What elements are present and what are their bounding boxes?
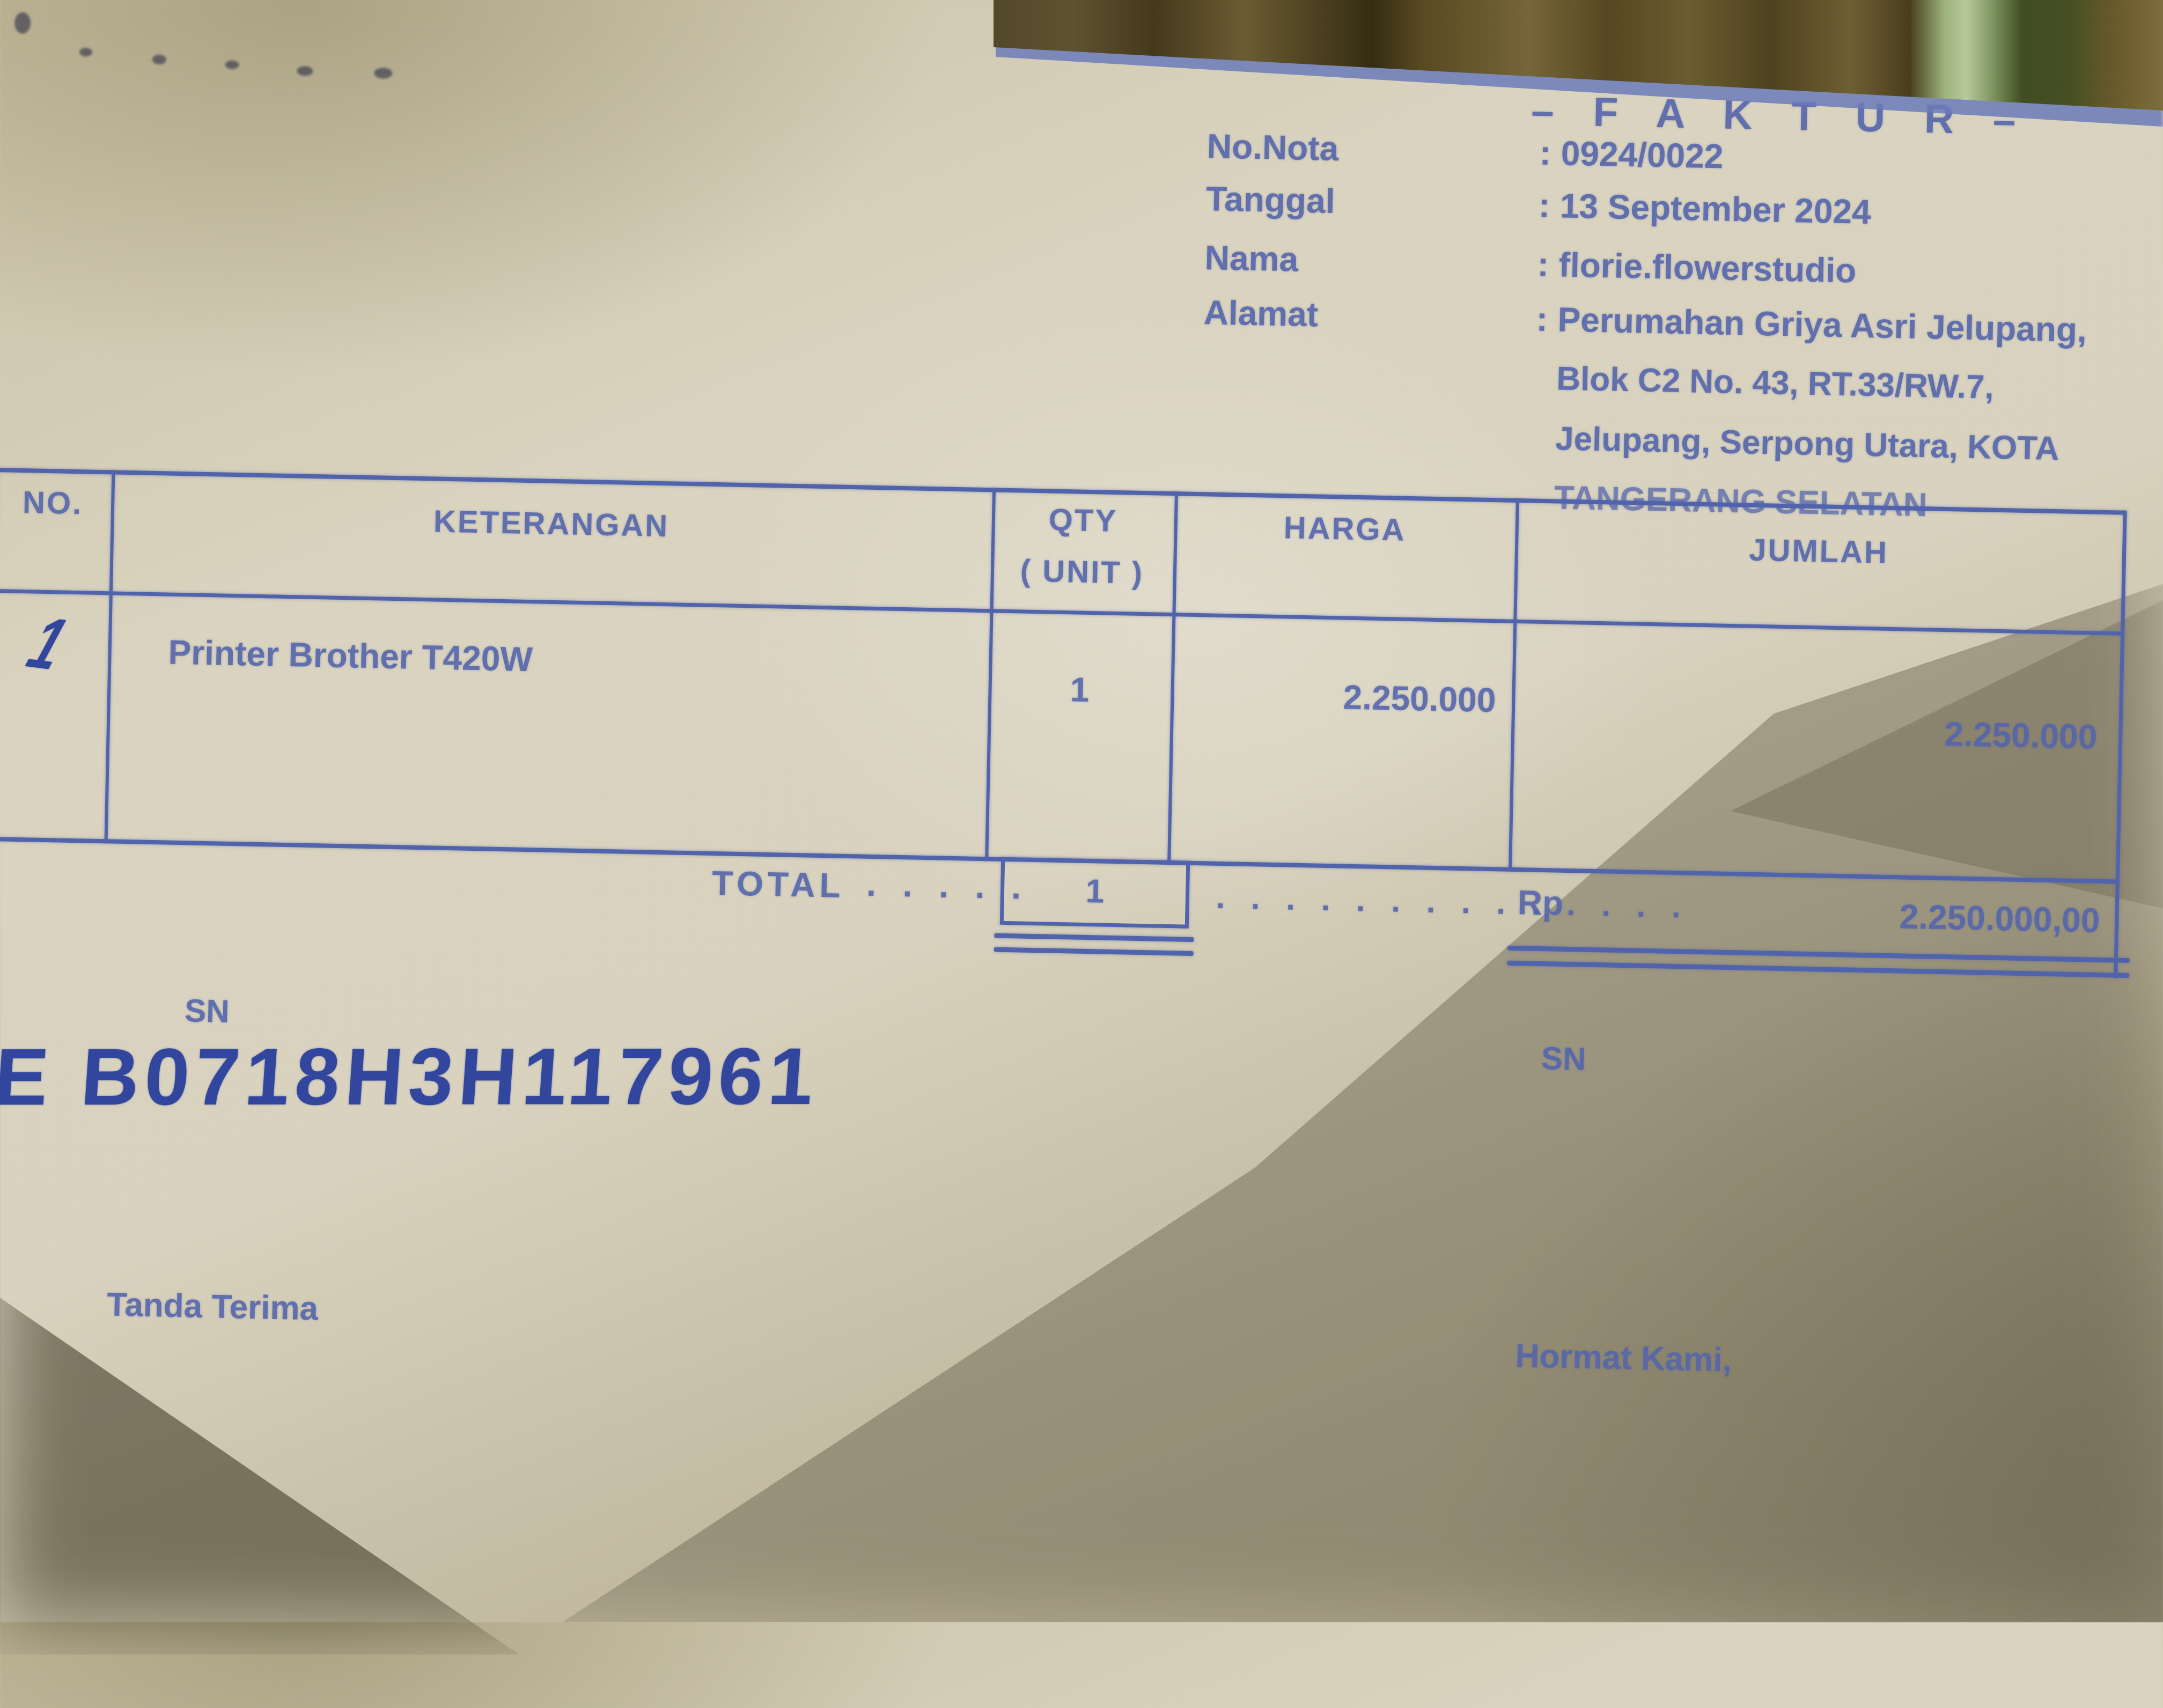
field-value: 0924/0022 (1561, 133, 1724, 176)
col-header-no: NO. (0, 484, 112, 522)
col-header-qty-unit: ( UNIT ) (990, 552, 1173, 592)
pen-scribble-marks (0, 0, 2163, 45)
col-header-keterangan: KETERANGAN (111, 497, 992, 550)
address-line: Blok C2 No. 43, RT.33/RW.7, (1556, 359, 1995, 406)
field-label: Nama (1204, 238, 1537, 284)
serial-number-handwritten: E B0718H3H117961 (0, 1030, 822, 1123)
total-amount-underline-1 (1507, 946, 2130, 963)
total-label: TOTAL (711, 863, 845, 905)
field-colon: : (1538, 186, 1560, 226)
item-description: Printer Brother T420W (168, 632, 533, 680)
table-border-headerbottom (0, 589, 2124, 636)
total-leader-dots-2: . . . . . . . . . . . . . . (1216, 879, 1689, 925)
total-qty-underline-1 (994, 933, 1194, 942)
field-value: 13 September 2024 (1559, 186, 1871, 232)
field-value: florie.flowerstudio (1558, 245, 1857, 290)
field-row-tanggal: Tanggal:13 September 2024 (1205, 179, 2163, 238)
total-amount-underline-2 (1507, 961, 2129, 978)
col-header-jumlah: JUMLAH (1514, 527, 2122, 576)
col-header-harga: HARGA (1174, 507, 1515, 550)
item-number-handwritten: 1 (13, 602, 84, 685)
items-table: NO. KETERANGAN QTY ( UNIT ) HARGA JUMLAH… (0, 468, 2127, 881)
col-header-qty: QTY (991, 500, 1174, 540)
item-qty: 1 (988, 668, 1171, 711)
receiver-signature-label: Tanda Terima (107, 1285, 319, 1328)
invoice-sheet: – F A K T U R – No.Nota:0924/0022 Tangga… (0, 0, 2163, 1708)
total-qty-box: 1 (1000, 857, 1190, 929)
address-line: Jelupang, Serpong Utara, KOTA (1555, 419, 2059, 468)
field-colon: : (1537, 245, 1559, 285)
field-label: Alamat (1203, 292, 1536, 338)
sn-label-left: SN (185, 992, 230, 1030)
field-label: No.Nota (1206, 126, 1540, 172)
item-amount: 2.250.000 (1511, 705, 2098, 757)
field-row-nama: Nama:florie.flowerstudio (1204, 238, 2163, 297)
field-label: Tanggal (1205, 179, 1539, 225)
sender-signature-label: Hormat Kami, (1515, 1337, 1732, 1379)
total-qty: 1 (1004, 871, 1186, 912)
item-price: 2.250.000 (1171, 674, 1496, 720)
total-currency: Rp (1517, 882, 1564, 923)
photographed-invoice: { "header": { "title": "– F A K T U R –"… (0, 0, 2163, 1622)
sn-label-right: SN (1541, 1040, 1586, 1078)
total-amount: 2.250.000,00 (1741, 894, 2100, 940)
table-border-right (2114, 511, 2127, 978)
field-row-alamat: Alamat:Perumahan Griya Asri Jelupang, (1203, 292, 2163, 351)
field-colon: : (1536, 299, 1558, 340)
field-value: Perumahan Griya Asri Jelupang, (1557, 299, 2087, 350)
total-qty-underline-2 (994, 947, 1194, 956)
field-colon: : (1539, 133, 1561, 173)
